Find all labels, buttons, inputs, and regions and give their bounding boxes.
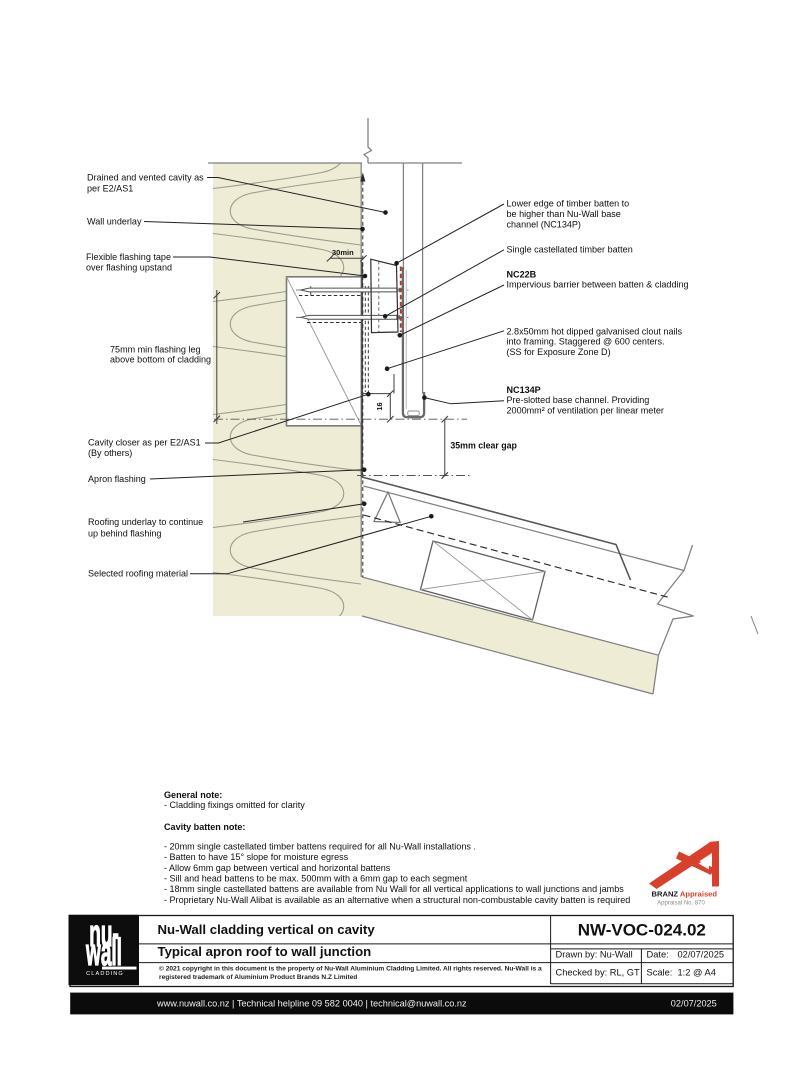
svg-text:Appraisal No. 870: Appraisal No. 870 [657, 901, 705, 907]
svg-text:Single castellated timber batt: Single castellated timber batten [507, 245, 633, 255]
svg-text:Wall underlay: Wall underlay [87, 217, 142, 227]
svg-text:www.nuwall.co.nz | Technical: www.nuwall.co.nz | Technical helpline 09… [156, 999, 467, 1009]
svg-text:be higher than Nu-Wall base: be higher than Nu-Wall base [507, 209, 621, 219]
svg-text:16: 16 [375, 402, 384, 410]
svg-text:up behind flashing: up behind flashing [88, 529, 161, 539]
svg-text:02/07/2025: 02/07/2025 [678, 950, 725, 960]
svg-text:NW-VOC-024.02: NW-VOC-024.02 [578, 921, 706, 940]
svg-text:into framing. Staggered @ 600: into framing. Staggered @ 600 centers. [507, 337, 665, 347]
svg-text:above bottom of cladding: above bottom of cladding [110, 354, 211, 364]
svg-text:CLADDING: CLADDING [86, 971, 124, 977]
svg-text:Cavity batten note:: Cavity batten note: [164, 822, 245, 832]
svg-text:Cavity closer as per E2/AS1: Cavity closer as per E2/AS1 [88, 438, 201, 448]
svg-text:Checked by: RL, GT: Checked by: RL, GT [556, 967, 641, 977]
svg-text:Drained and vented cavity as: Drained and vented cavity as [87, 173, 204, 183]
svg-text:Apron flashing: Apron flashing [88, 474, 146, 484]
svg-text:02/07/2025: 02/07/2025 [671, 999, 717, 1009]
svg-text:Roofing underlay to continue: Roofing underlay to continue [88, 517, 203, 527]
svg-text:NC22B: NC22B [507, 269, 537, 279]
svg-text:30min: 30min [332, 248, 354, 257]
svg-text:35mm clear gap: 35mm clear gap [450, 440, 517, 450]
svg-text:Typical apron roof to wall jun: Typical apron roof to wall junction [158, 944, 372, 959]
svg-text:- 20mm single castellated timb: - 20mm single castellated timber battens… [164, 841, 476, 851]
svg-text:2000mm² of ventilation per lin: 2000mm² of ventilation per linear meter [507, 406, 664, 416]
svg-text:© 2021 copyright in this docum: © 2021 copyright in this document is the… [159, 965, 542, 973]
svg-text:channel (NC134P): channel (NC134P) [507, 219, 581, 229]
svg-text:Flexible flashing tape: Flexible flashing tape [86, 252, 171, 262]
svg-text:Scale:: Scale: [647, 967, 673, 977]
svg-text:- Cladding fixings omitted for: - Cladding fixings omitted for clarity [164, 800, 305, 810]
svg-text:- 18mm single castellated batt: - 18mm single castellated battens are av… [164, 884, 624, 894]
svg-text:NC134P: NC134P [507, 385, 541, 395]
svg-text:75mm min flashing leg: 75mm min flashing leg [110, 345, 201, 355]
svg-text:per E2/AS1: per E2/AS1 [87, 183, 133, 193]
svg-text:- Proprietary Nu-Wall Alibat i: - Proprietary Nu-Wall Alibat is availabl… [164, 895, 630, 905]
svg-text:Drawn by: Nu-Wall: Drawn by: Nu-Wall [556, 950, 633, 960]
svg-text:General note:: General note: [164, 790, 222, 800]
svg-text:Selected roofing material: Selected roofing material [88, 569, 188, 579]
svg-text:1:2 @ A4: 1:2 @ A4 [678, 967, 716, 977]
svg-text:BRANZ Appraised: BRANZ Appraised [652, 890, 718, 899]
svg-text:over flashing upstand: over flashing upstand [86, 263, 172, 273]
svg-text:Impervious barrier between bat: Impervious barrier between batten & clad… [507, 280, 689, 290]
svg-text:Date:: Date: [647, 950, 669, 960]
svg-text:(By others): (By others) [88, 448, 132, 458]
svg-text:Pre-slotted base channel. Prov: Pre-slotted base channel. Providing [507, 395, 650, 405]
svg-text:- Batten to have 15° slope for: - Batten to have 15° slope for moisture … [164, 852, 349, 862]
svg-text:registered trademark of Alumin: registered trademark of Aluminium Produc… [159, 974, 357, 981]
svg-text:(SS for Exposure Zone D): (SS for Exposure Zone D) [507, 347, 611, 357]
svg-text:2.8x50mm hot dipped galvanised: 2.8x50mm hot dipped galvanised clout nai… [507, 326, 683, 336]
svg-text:- Sill and head battens to be: - Sill and head battens to be max. 500mm… [164, 874, 468, 884]
svg-text:Nu-Wall cladding vertical on c: Nu-Wall cladding vertical on cavity [158, 922, 376, 937]
svg-text:- Allow 6mm gap between vertic: - Allow 6mm gap between vertical and hor… [164, 863, 391, 873]
svg-text:Lower edge of timber batten to: Lower edge of timber batten to [507, 199, 630, 209]
